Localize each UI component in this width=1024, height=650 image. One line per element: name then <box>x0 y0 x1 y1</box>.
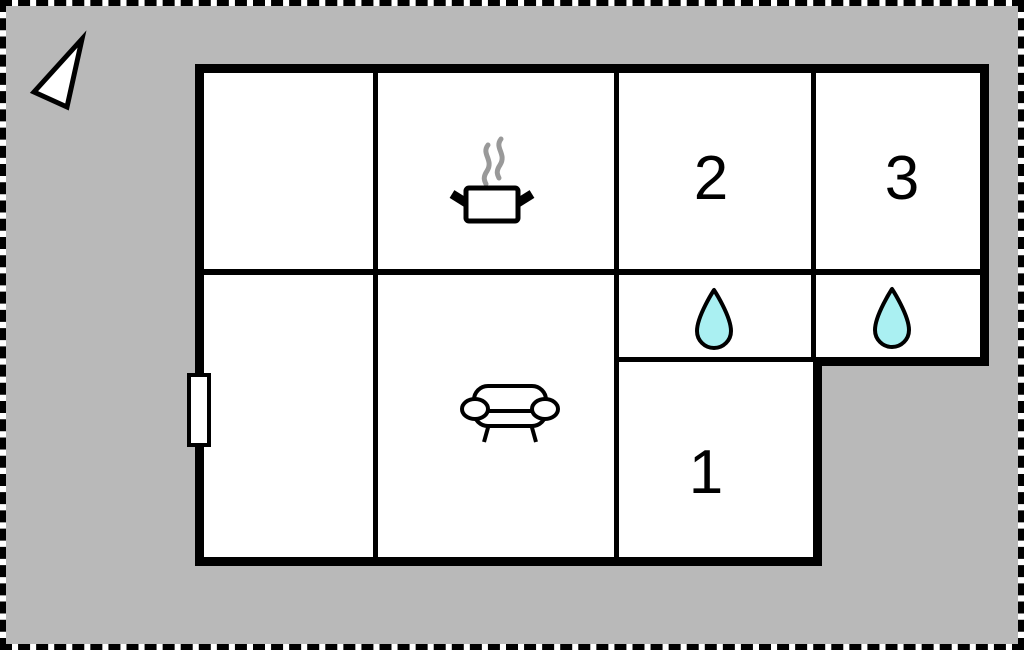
wall-outer-notch-horizontal <box>813 357 989 366</box>
water-drop-icon <box>869 285 915 353</box>
wall-interior-h1 <box>204 269 980 275</box>
wall-interior-h2 <box>619 357 813 362</box>
door-icon <box>187 373 211 447</box>
steam-icon <box>497 139 502 178</box>
wall-outer-bottom <box>195 557 822 566</box>
floorplan-canvas: 2 3 1 <box>0 0 1024 650</box>
room-3-label: 3 <box>852 144 952 214</box>
water-drop-icon <box>691 286 737 354</box>
steam-icon <box>484 145 489 184</box>
wall-interior-v2 <box>614 73 619 557</box>
room-2-label: 2 <box>661 144 761 214</box>
wall-outer-left <box>195 64 204 566</box>
wall-interior-v3 <box>811 73 816 357</box>
room-1-label: 1 <box>656 438 756 508</box>
wall-interior-v1 <box>373 73 378 557</box>
wall-outer-top <box>195 64 989 73</box>
cooking-pot-icon <box>439 131 551 226</box>
sofa-icon <box>454 378 569 450</box>
wall-outer-right <box>980 64 989 366</box>
wall-outer-notch-vertical <box>813 357 822 566</box>
north-arrow-icon <box>24 30 96 118</box>
